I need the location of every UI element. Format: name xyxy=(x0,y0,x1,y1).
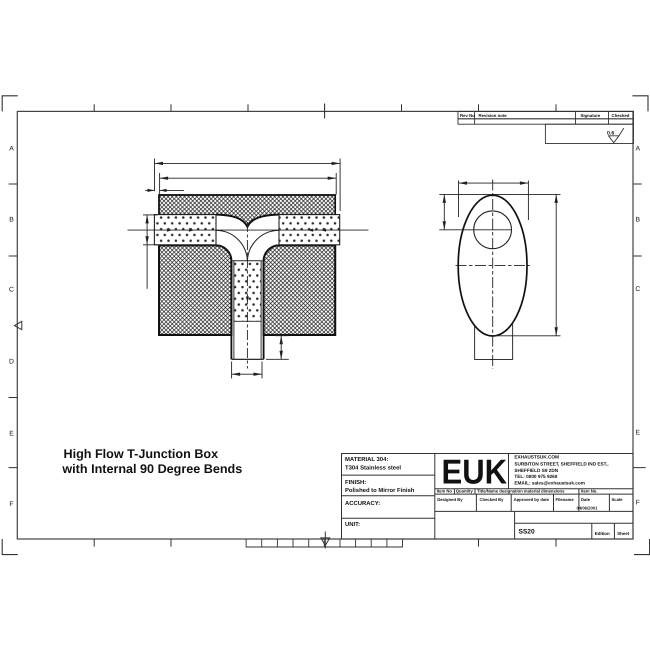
svg-text:F: F xyxy=(636,499,640,506)
svg-text:Checked: Checked xyxy=(612,113,630,118)
svg-text:EMAIL: sales@exhaustsuk.com: EMAIL: sales@exhaustsuk.com xyxy=(514,481,584,486)
svg-text:D: D xyxy=(9,358,14,365)
svg-text:SHEFFIELD S9 2DN: SHEFFIELD S9 2DN xyxy=(514,468,558,473)
svg-text:Date: Date xyxy=(581,497,591,502)
svg-text:Filename: Filename xyxy=(556,497,575,502)
svg-text:Item No: Item No xyxy=(437,489,453,494)
svg-text:B: B xyxy=(9,216,14,223)
svg-text:Item No.: Item No. xyxy=(581,489,598,494)
svg-text:Approved by date: Approved by date xyxy=(514,497,550,502)
svg-text:Sheet: Sheet xyxy=(617,531,629,536)
svg-text:FINISH:: FINISH: xyxy=(345,479,366,486)
svg-text:A: A xyxy=(636,145,641,152)
svg-text:with Internal 90 Degree Bends: with Internal 90 Degree Bends xyxy=(61,462,242,476)
svg-text:Quantity: Quantity xyxy=(456,489,474,494)
svg-text:High Flow T-Junction Box: High Flow T-Junction Box xyxy=(64,447,219,461)
svg-text:B: B xyxy=(636,216,641,223)
svg-text:T304 Stainless steel: T304 Stainless steel xyxy=(345,464,401,471)
svg-text:A: A xyxy=(9,145,14,152)
svg-text:SURBITON STREET, SHEFFIELD IND: SURBITON STREET, SHEFFIELD IND EST., xyxy=(514,461,608,466)
svg-text:ACCURACY:: ACCURACY: xyxy=(345,500,380,507)
svg-text:Designed By: Designed By xyxy=(437,497,463,502)
svg-text:C: C xyxy=(9,286,14,293)
svg-text:Signature: Signature xyxy=(581,113,601,118)
svg-text:Edition: Edition xyxy=(595,531,610,536)
svg-text:Checked By: Checked By xyxy=(480,497,505,502)
svg-text:C: C xyxy=(635,286,640,293)
svg-text:04/06/2001: 04/06/2001 xyxy=(577,506,599,511)
svg-text:Rev No: Rev No xyxy=(460,113,475,118)
svg-text:Scale: Scale xyxy=(612,497,624,502)
svg-text:Revision note: Revision note xyxy=(479,113,508,118)
svg-text:EUK: EUK xyxy=(442,453,508,491)
svg-text:MATERIAL 304:: MATERIAL 304: xyxy=(345,456,388,463)
svg-text:E: E xyxy=(9,430,14,437)
svg-text:TEL: 0800 975 9268: TEL: 0800 975 9268 xyxy=(514,474,557,479)
svg-text:F: F xyxy=(9,501,13,508)
svg-text:E: E xyxy=(636,429,641,436)
svg-text:EXHAUSTSUK.COM: EXHAUSTSUK.COM xyxy=(514,455,559,460)
svg-text:Polished to Mirror Finish: Polished to Mirror Finish xyxy=(345,487,415,494)
svg-text:SS20: SS20 xyxy=(519,528,535,535)
svg-text:UNIT:: UNIT: xyxy=(345,521,360,528)
svg-text:Title/Name designation materia: Title/Name designation material dimensio… xyxy=(477,489,565,494)
